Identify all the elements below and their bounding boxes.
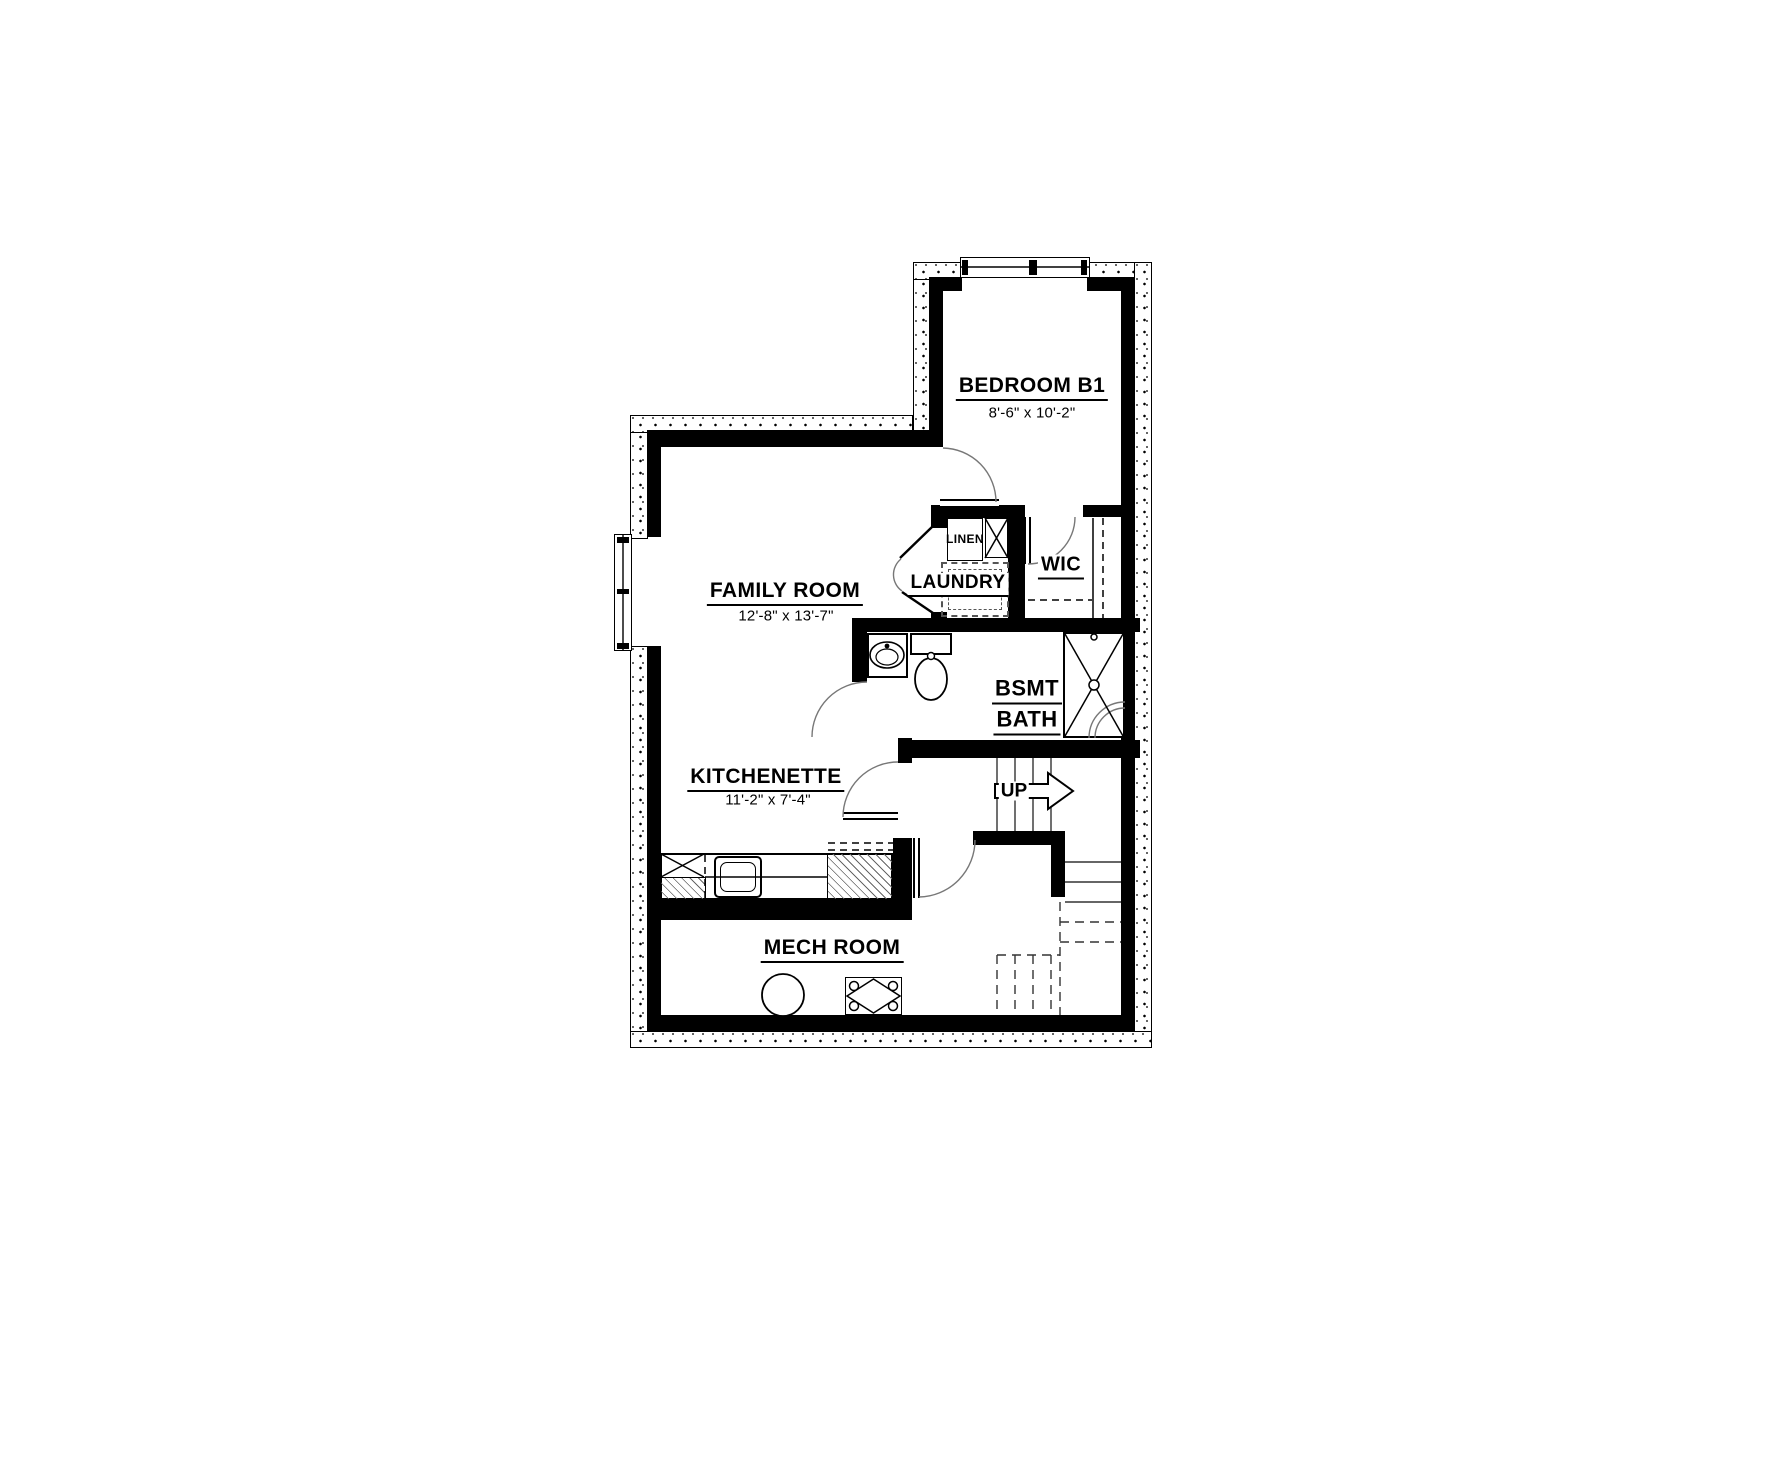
label-wic: WIC	[1038, 555, 1084, 580]
window-left-cap-bottom	[617, 643, 629, 649]
floor-plan: BEDROOM B1 8'-6" x 10'-2" FAMILY ROOM 12…	[0, 0, 1780, 1480]
label-mech-room: MECH ROOM	[761, 937, 904, 963]
door-leaf-mech	[913, 838, 920, 898]
toilet-tank	[910, 633, 952, 655]
door-arc-hall	[843, 762, 898, 817]
wall-hall-stub-upper	[898, 738, 912, 763]
window-top-cap-mid	[1029, 260, 1037, 275]
wall-bath-south	[898, 740, 1140, 758]
counter-hatch-left	[660, 877, 706, 900]
label-bath: BATH	[993, 709, 1060, 736]
wall-family-top	[647, 430, 943, 447]
window-top-frame	[960, 257, 1090, 278]
wall-bath-west	[852, 632, 867, 682]
label-linen: LINEN	[946, 533, 984, 545]
dims-bedroom: 8'-6" x 10'-2"	[989, 406, 1076, 421]
door-arc-bath	[812, 682, 867, 737]
dims-family-room: 12'-8" x 13'-7"	[738, 609, 833, 624]
wall-laundry-wic-divider	[1008, 505, 1025, 632]
label-laundry: LAUNDRY	[908, 573, 1009, 597]
shower-stall	[1063, 632, 1125, 738]
label-linen-text: LINEN	[946, 532, 984, 546]
wall-exterior-bottom	[630, 1031, 1152, 1048]
wall-wing-left-inner	[929, 277, 943, 447]
door-leaf-wic	[1024, 517, 1031, 564]
wall-exterior-left-lower	[630, 646, 648, 1048]
chase-box	[985, 518, 1008, 558]
label-bath-text: BATH	[993, 709, 1060, 736]
window-gap-left	[629, 539, 662, 646]
label-family-room-text: FAMILY ROOM	[707, 580, 863, 606]
kitchen-sink-inner	[720, 862, 756, 892]
label-kitchenette: KITCHENETTE	[687, 766, 844, 792]
wall-left-inner-lower	[647, 646, 661, 1018]
wall-laundry-west-stub-top	[931, 505, 947, 528]
wall-stair-side	[1051, 845, 1065, 897]
label-family-room: FAMILY ROOM	[707, 580, 863, 606]
toilet-bowl	[915, 658, 947, 700]
window-left-cap-top	[617, 537, 629, 543]
label-laundry-text: LAUNDRY	[908, 573, 1009, 597]
water-tank	[762, 974, 804, 1016]
label-bsmt: BSMT	[992, 678, 1062, 705]
laundry-bifold-leaf-top	[900, 527, 932, 558]
door-arc-mech	[919, 840, 975, 897]
window-left-cap-mid	[617, 589, 629, 594]
counter-hatch-right	[827, 853, 893, 900]
label-bedroom-text: BEDROOM B1	[956, 375, 1108, 401]
wall-hall-stub-lower	[893, 838, 912, 902]
label-up: UP	[999, 782, 1029, 801]
window-top-cap-left	[962, 260, 968, 275]
bath-vanity	[867, 633, 908, 678]
door-arc-bedroom	[943, 448, 996, 502]
wall-kitchen-mech	[647, 898, 912, 920]
label-mech-room-text: MECH ROOM	[761, 937, 904, 963]
wall-stair-landing	[973, 831, 1065, 845]
plan-linework	[0, 0, 1780, 1480]
laundry-bifold-swing	[893, 559, 902, 591]
wall-bedroom-south-east	[1083, 505, 1125, 517]
label-bsmt-text: BSMT	[992, 678, 1062, 705]
label-wic-text: WIC	[1038, 555, 1084, 580]
wall-bath-north	[852, 618, 1140, 632]
wall-wing-top-inner-west	[929, 277, 962, 291]
wall-bottom-inner	[647, 1015, 1135, 1032]
wall-left-inner-upper	[647, 430, 661, 537]
window-top-cap-right	[1081, 260, 1087, 275]
furnace-box	[845, 977, 902, 1015]
wall-exterior-left-upper	[630, 415, 648, 539]
wall-exterior-right	[1134, 262, 1152, 1048]
label-bedroom: BEDROOM B1	[956, 375, 1108, 401]
dims-kitchenette: 11'-2" x 7'-4"	[725, 793, 811, 808]
label-kitchenette-text: KITCHENETTE	[687, 766, 844, 792]
door-leaf-hall	[843, 812, 898, 820]
opening-header	[940, 499, 999, 508]
